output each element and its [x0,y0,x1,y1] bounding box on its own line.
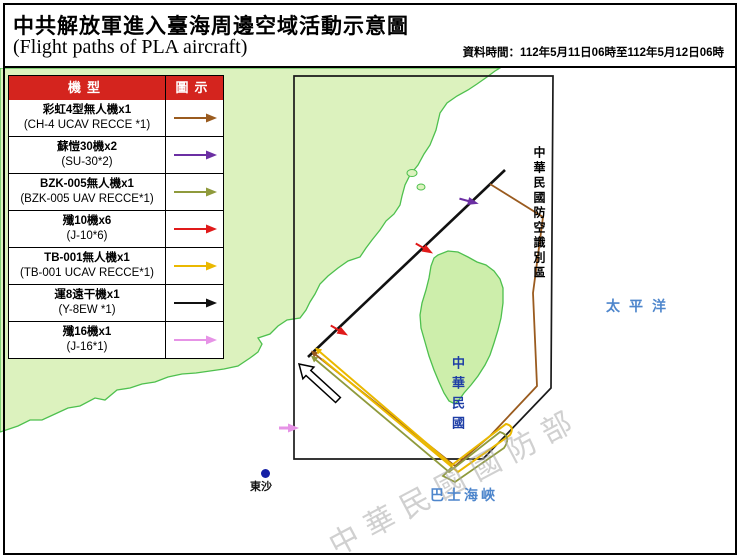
symbol-cell [166,174,223,210]
aircraft-name-zh: 運8遠干機x1 [9,288,165,303]
aircraft-type-cell: 蘇愷30機x2(SU-30*2) [9,137,166,173]
aircraft-type-cell: 彩虹4型無人機x1(CH-4 UCAV RECCE *1) [9,100,166,136]
aircraft-name-zh: 彩虹4型無人機x1 [9,103,165,118]
adiz-zone-label: 中華民國防空識別區 [531,146,548,281]
dongsha-label: 東沙 [250,478,272,494]
legend-table: 機型 圖示 彩虹4型無人機x1(CH-4 UCAV RECCE *1)蘇愷30機… [8,75,224,359]
legend-row-y8ew: 運8遠干機x1(Y-8EW *1) [9,284,223,321]
legend-header-type: 機型 [9,76,166,100]
aircraft-name-en: (J-10*6) [9,229,165,244]
j16-aircraft-icon [279,424,299,433]
aircraft-name-zh: 蘇愷30機x2 [9,140,165,155]
symbol-cell [166,137,223,173]
legend-row-j10: 殲10機x6(J-10*6) [9,210,223,247]
coastal-island [417,184,425,190]
path-arrow-icon [172,334,218,346]
aircraft-type-cell: 殲16機x1(J-16*1) [9,322,166,358]
aircraft-name-en: (Y-8EW *1) [9,303,165,318]
aircraft-name-en: (J-16*1) [9,340,165,355]
aircraft-type-cell: TB-001無人機x1(TB-001 UCAV RECCE*1) [9,248,166,284]
aircraft-name-en: (SU-30*2) [9,155,165,170]
dongsha-island-dot [261,469,270,478]
symbol-cell [166,100,223,136]
symbol-cell [166,211,223,247]
taiwan-label: 中華民國 [448,356,467,436]
symbol-cell [166,285,223,321]
legend-row-su30: 蘇愷30機x2(SU-30*2) [9,136,223,173]
aircraft-type-cell: BZK-005無人機x1(BZK-005 UAV RECCE*1) [9,174,166,210]
aircraft-name-zh: 殲10機x6 [9,214,165,229]
aircraft-name-en: (BZK-005 UAV RECCE*1) [9,192,165,207]
data-timestamp: 資料時間：112年5月11日06時至112年5月12日06時 [463,44,724,60]
aircraft-name-zh: TB-001無人機x1 [9,251,165,266]
path-arrow-icon [172,297,218,309]
legend-header-symbol: 圖示 [166,76,223,100]
path-arrow-icon [172,149,218,161]
symbol-cell [166,248,223,284]
title-divider [3,66,737,68]
page-subtitle: (Flight paths of PLA aircraft) [13,36,247,59]
symbol-cell [166,322,223,358]
path-arrow-icon [172,223,218,235]
legend-row-j16: 殲16機x1(J-16*1) [9,321,223,358]
aircraft-name-en: (CH-4 UCAV RECCE *1) [9,118,165,133]
aircraft-name-zh: 殲16機x1 [9,325,165,340]
legend-row-bzk005: BZK-005無人機x1(BZK-005 UAV RECCE*1) [9,173,223,210]
aircraft-name-en: (TB-001 UCAV RECCE*1) [9,266,165,281]
path-arrow-icon [172,260,218,272]
j10-aircraft-icon [329,322,350,339]
coastal-island [407,170,417,177]
flight-paths-chart-page: 中共解放軍進入臺海周邊空域活動示意圖 (Flight paths of PLA … [0,0,740,558]
path-arrow-icon [172,186,218,198]
bashi-channel-label: 巴士海峽 [430,485,498,505]
legend-row-tb001: TB-001無人機x1(TB-001 UCAV RECCE*1) [9,247,223,284]
pacific-ocean-label: 太平洋 [606,296,675,316]
path-arrow-icon [172,112,218,124]
aircraft-type-cell: 殲10機x6(J-10*6) [9,211,166,247]
legend-header-row: 機型 圖示 [9,76,223,100]
legend-row-ch4: 彩虹4型無人機x1(CH-4 UCAV RECCE *1) [9,100,223,136]
aircraft-type-cell: 運8遠干機x1(Y-8EW *1) [9,285,166,321]
aircraft-name-zh: BZK-005無人機x1 [9,177,165,192]
